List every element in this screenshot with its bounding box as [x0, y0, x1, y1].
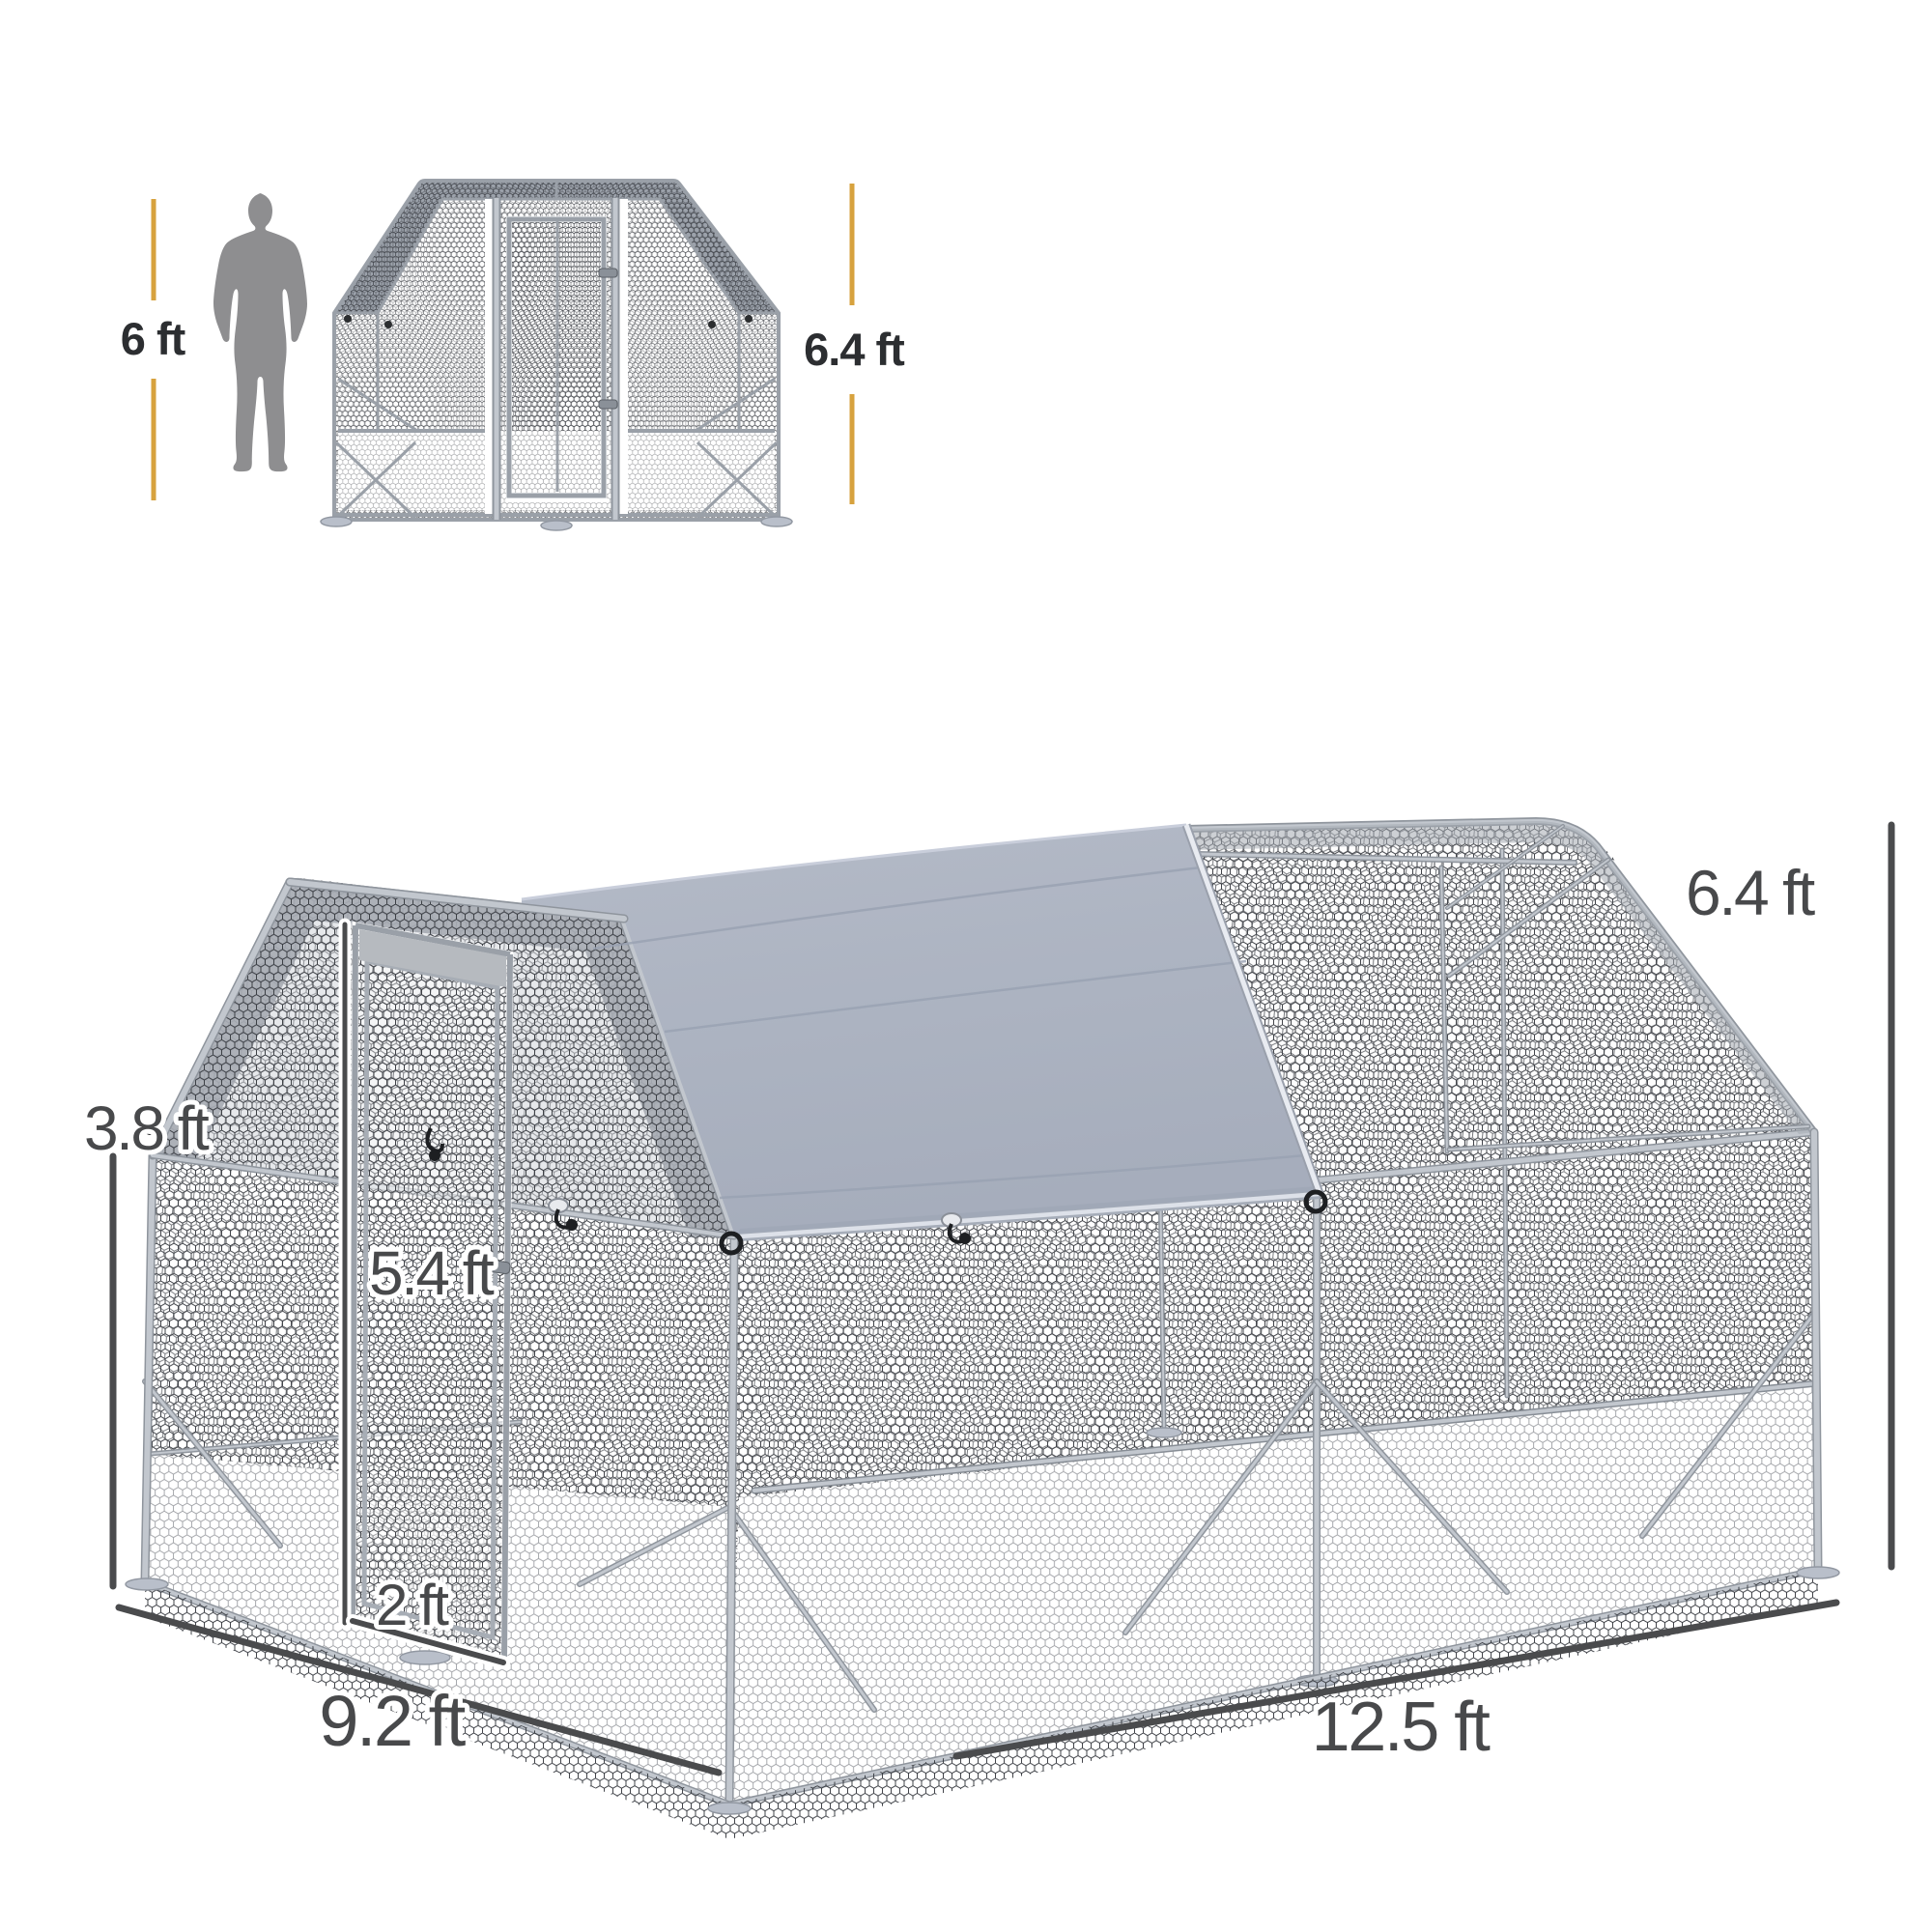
svg-text:6.4 ft: 6.4 ft [1686, 857, 1815, 928]
svg-text:5.4 ft: 5.4 ft [369, 1238, 495, 1308]
svg-text:3.8 ft: 3.8 ft [84, 1094, 210, 1163]
svg-text:12.5 ft: 12.5 ft [1312, 1689, 1491, 1766]
svg-text:2 ft: 2 ft [376, 1573, 449, 1637]
svg-text:6 ft: 6 ft [121, 313, 186, 364]
svg-text:9.2 ft: 9.2 ft [319, 1681, 466, 1761]
svg-text:6.4 ft: 6.4 ft [804, 324, 905, 375]
